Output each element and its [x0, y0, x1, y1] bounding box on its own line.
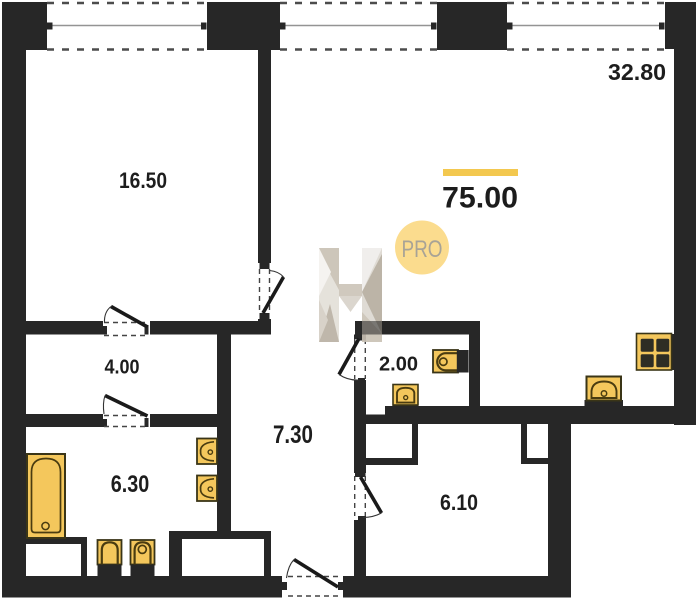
svg-text:7.30: 7.30 [273, 421, 313, 449]
svg-text:16.50: 16.50 [119, 168, 167, 193]
svg-text:6.10: 6.10 [440, 490, 478, 515]
svg-text:4.00: 4.00 [105, 356, 140, 379]
svg-text:PRO: PRO [402, 236, 443, 263]
svg-text:6.30: 6.30 [111, 471, 150, 498]
svg-text:32.80: 32.80 [608, 59, 666, 85]
svg-text:2.00: 2.00 [379, 354, 418, 376]
svg-text:75.00: 75.00 [442, 182, 518, 215]
